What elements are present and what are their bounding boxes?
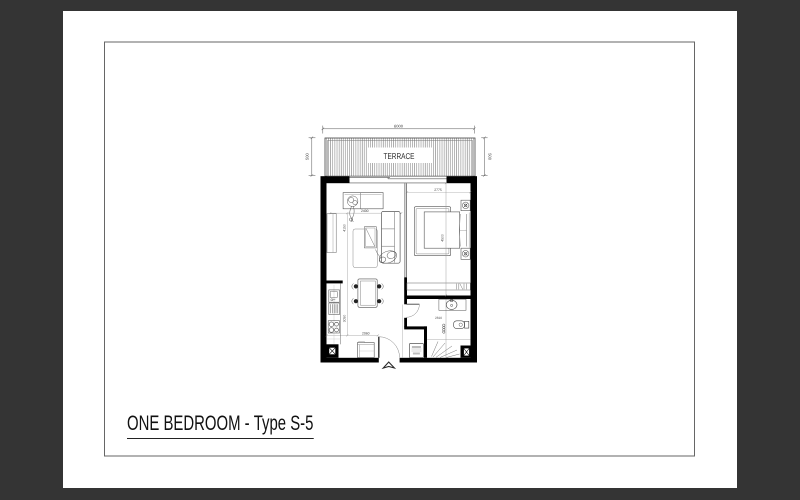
svg-text:500: 500 [304, 152, 309, 159]
svg-text:500: 500 [488, 153, 493, 160]
svg-text:TERRACE: TERRACE [384, 151, 415, 161]
svg-text:2810: 2810 [435, 316, 442, 320]
svg-text:2775: 2775 [434, 188, 442, 192]
svg-text:4150: 4150 [342, 224, 346, 232]
svg-text:2060: 2060 [362, 331, 370, 335]
svg-text:3050: 3050 [342, 315, 346, 323]
svg-text:2400: 2400 [361, 209, 369, 213]
svg-text:6000: 6000 [394, 124, 404, 129]
svg-text:4500: 4500 [440, 234, 444, 242]
